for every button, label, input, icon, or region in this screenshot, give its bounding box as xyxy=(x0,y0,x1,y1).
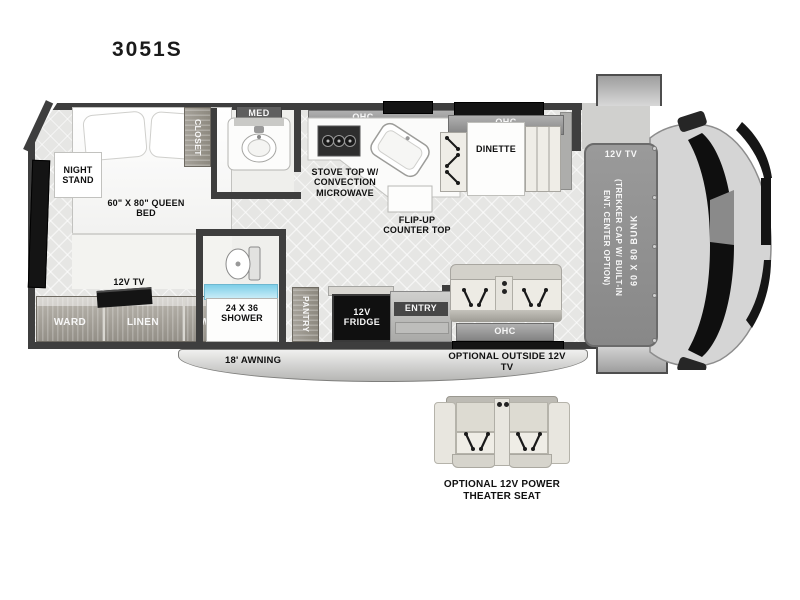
dinette-label: DINETTE xyxy=(469,144,523,154)
dinette-window xyxy=(454,102,544,116)
seat-back-right xyxy=(508,402,548,432)
fridge: 12V FRIDGE xyxy=(332,294,392,342)
bunk-label: 60 X 80 BUNK xyxy=(628,190,642,310)
entry-label-band: ENTRY xyxy=(394,302,448,316)
pantry-label: PANTRY xyxy=(301,296,310,332)
vanity-sink-icon xyxy=(227,114,293,174)
seat-footrest-left xyxy=(452,454,496,468)
flip-up-counter xyxy=(388,186,432,212)
cup-holder xyxy=(502,289,507,294)
wall xyxy=(196,229,286,236)
theater-seat xyxy=(432,394,572,478)
hinge-dot xyxy=(652,146,657,151)
night-stand: NIGHT STAND xyxy=(54,152,102,198)
wall xyxy=(279,229,286,343)
night-stand-label: NIGHT STAND xyxy=(57,165,99,186)
cushion-line xyxy=(548,127,550,191)
flip-up-label: FLIP-UP COUNTER TOP xyxy=(375,215,459,236)
cushion-line xyxy=(536,127,538,191)
seat-footrest-right xyxy=(508,454,552,468)
theater-seat-label: OPTIONAL 12V POWER THEATER SEAT xyxy=(424,479,580,502)
cup-holder xyxy=(504,402,509,407)
fridge-label: 12V FRIDGE xyxy=(342,308,382,328)
stove-label: STOVE TOP W/ CONVECTION MICROWAVE xyxy=(303,167,387,198)
dinette-table xyxy=(467,122,525,196)
bunk-tv-label: 12V TV xyxy=(588,150,654,160)
front-grille xyxy=(761,178,771,245)
floorplan-page: 3051S 60" X 80" QUEEN BED NIGHT STAND WA… xyxy=(0,0,800,600)
truck-cab xyxy=(640,70,780,370)
queen-bed-label: 60" X 80" QUEEN BED xyxy=(100,198,192,219)
wall xyxy=(211,192,301,199)
trekker-cap-note: (TREKKER CAP W/ BUILT-IN ENT. CENTER OPT… xyxy=(596,172,624,304)
seatbelt-icon xyxy=(441,133,466,191)
seat-console xyxy=(494,398,510,466)
dinette-bench-right xyxy=(525,126,561,192)
bedroom-tv-label: 12V TV xyxy=(105,277,153,287)
seatbelt-icon xyxy=(460,430,494,454)
cup-holder xyxy=(502,281,507,286)
wall xyxy=(572,103,581,151)
hinge-dot xyxy=(652,195,657,200)
linen-label: LINEN xyxy=(105,317,181,328)
toilet-icon xyxy=(222,244,264,284)
step-line xyxy=(395,322,449,334)
seatbelt-icon xyxy=(458,286,492,310)
closet: CLOSET xyxy=(184,107,211,167)
entry-steps xyxy=(390,291,452,342)
wall xyxy=(211,108,217,198)
outside-tv-label: OPTIONAL OUTSIDE 12V TV xyxy=(447,352,567,374)
awning-label: 18' AWNING xyxy=(225,356,320,367)
hinge-dot xyxy=(652,293,657,298)
sofa-console xyxy=(495,276,513,314)
seatbelt-icon xyxy=(512,430,546,454)
cup-holder xyxy=(497,402,502,407)
seat-back-left xyxy=(456,402,496,432)
seatbelt-icon xyxy=(518,286,552,310)
sofa-front xyxy=(450,310,562,322)
closet-label: CLOSET xyxy=(193,119,202,156)
sofa-ohc-label: OHC xyxy=(478,327,532,337)
shower-label: 24 X 36 SHOWER xyxy=(208,303,276,324)
ward-left-label: WARD xyxy=(39,317,101,328)
entry-label: ENTRY xyxy=(405,304,437,314)
dinette-bench-left xyxy=(440,132,467,192)
hinge-dot xyxy=(652,338,657,343)
pantry: PANTRY xyxy=(292,287,319,342)
hinge-dot xyxy=(652,244,657,249)
wall xyxy=(196,229,203,343)
floorplan-title: 3051S xyxy=(112,38,242,62)
